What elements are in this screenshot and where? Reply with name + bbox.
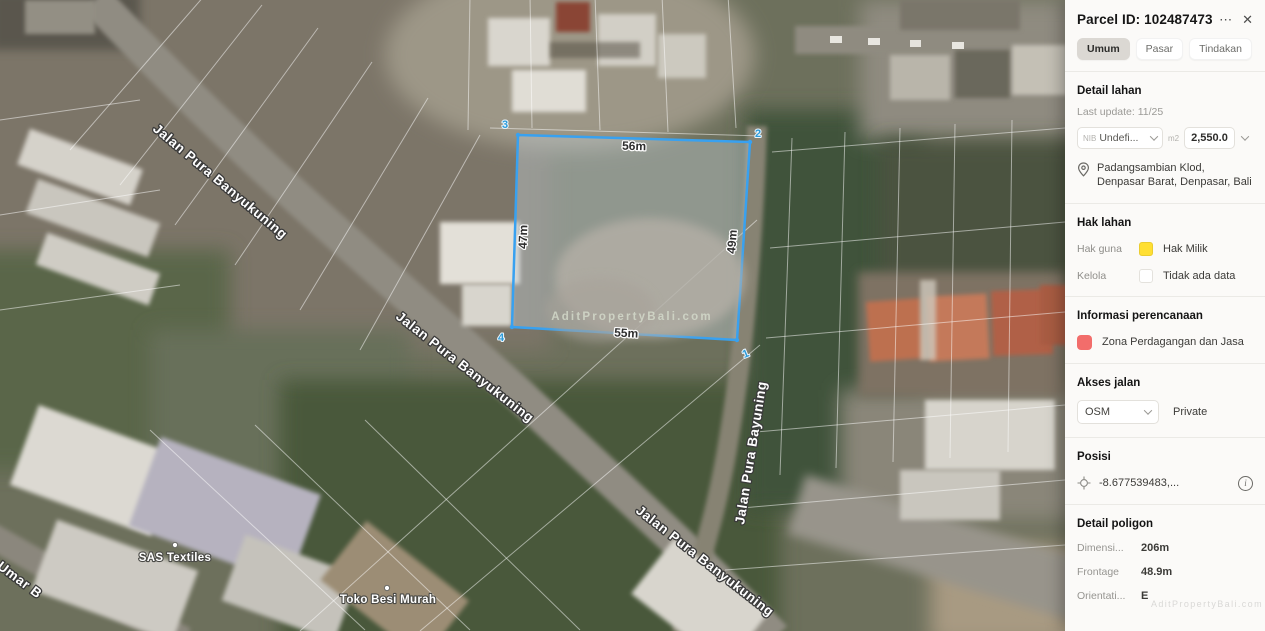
section-detail-lahan: Detail lahan Last update: 11/25 NIB Unde… — [1065, 72, 1265, 204]
detail-poligon-heading: Detail poligon — [1077, 518, 1253, 530]
section-informasi-perencanaan: Informasi perencanaan Zona Perdagangan d… — [1065, 297, 1265, 364]
edge-label-left: 47m — [516, 225, 531, 250]
road-source-select[interactable]: OSM — [1077, 400, 1159, 424]
satellite-canvas: 56m 47m 49m 55m 3 2 1 4 AditPropertyBali… — [0, 0, 1065, 631]
detail-lahan-heading: Detail lahan — [1077, 85, 1253, 97]
page-title: Parcel ID: 102487473 — [1077, 12, 1213, 27]
panel-header: Parcel ID: 102487473 ⋯ ✕ — [1065, 0, 1265, 34]
section-akses-jalan: Akses jalan OSM Private — [1065, 364, 1265, 438]
nib-label: NIB — [1083, 134, 1096, 143]
close-icon[interactable]: ✕ — [1240, 11, 1255, 28]
akses-jalan-heading: Akses jalan — [1077, 377, 1253, 389]
hak-guna-swatch — [1139, 242, 1153, 256]
edge-label-bottom: 55m — [614, 325, 639, 340]
nib-select[interactable]: NIB Undefi... — [1077, 127, 1163, 149]
map-watermark: AditPropertyBali.com — [551, 311, 713, 323]
road-type-value: Private — [1173, 406, 1207, 418]
frontage-row: Frontage 48.9m — [1077, 566, 1253, 578]
section-posisi: Posisi -8.677539483,... i — [1065, 438, 1265, 505]
kelola-value: Tidak ada data — [1163, 270, 1235, 282]
road-source-value: OSM — [1085, 406, 1110, 418]
poi-label-sas-textiles: SAS Textiles — [139, 552, 211, 564]
chevron-down-icon — [1150, 132, 1158, 140]
edge-label-top: 56m — [622, 139, 646, 154]
informasi-perencanaan-heading: Informasi perencanaan — [1077, 310, 1253, 322]
zone-label: Zona Perdagangan dan Jasa — [1102, 336, 1244, 348]
orientasi-row: Orientati... E — [1077, 590, 1253, 602]
posisi-heading: Posisi — [1077, 451, 1253, 463]
dimensi-value: 206m — [1141, 542, 1169, 554]
kelola-row: Kelola Tidak ada data — [1077, 269, 1253, 283]
poi-label-toko-besi-murah: Toko Besi Murah — [340, 594, 436, 606]
tab-umum[interactable]: Umum — [1077, 38, 1130, 60]
vertex-label-4: 4 — [498, 332, 505, 344]
zone-row: Zona Perdagangan dan Jasa — [1077, 335, 1253, 350]
nib-value: Undefi... — [1099, 132, 1138, 144]
area-value: 2,550.0 — [1191, 132, 1228, 144]
vertex-label-3: 3 — [502, 119, 508, 131]
frontage-value: 48.9m — [1141, 566, 1172, 578]
tab-bar: Umum Pasar Tindakan — [1065, 34, 1265, 72]
dimensi-label: Dimensi... — [1077, 542, 1141, 554]
last-update-text: Last update: 11/25 — [1077, 106, 1253, 118]
area-unit-label: m2 — [1168, 134, 1179, 143]
coordinates-value: -8.677539483,... — [1099, 477, 1230, 489]
orientasi-label: Orientati... — [1077, 590, 1141, 602]
info-icon[interactable]: i — [1238, 476, 1253, 491]
section-hak-lahan: Hak lahan Hak guna Hak Milik Kelola Tida… — [1065, 204, 1265, 297]
frontage-label: Frontage — [1077, 566, 1141, 578]
zone-swatch — [1077, 335, 1092, 350]
hak-guna-value: Hak Milik — [1163, 243, 1208, 255]
area-input[interactable]: 2,550.0 — [1184, 127, 1235, 149]
chevron-down-icon — [1144, 406, 1152, 414]
kelola-swatch — [1139, 269, 1153, 283]
satellite-map[interactable]: 56m 47m 49m 55m 3 2 1 4 AditPropertyBali… — [0, 0, 1065, 631]
dimensi-row: Dimensi... 206m — [1077, 542, 1253, 554]
tab-pasar[interactable]: Pasar — [1136, 38, 1183, 60]
orientasi-value: E — [1141, 590, 1148, 602]
hak-lahan-heading: Hak lahan — [1077, 217, 1253, 229]
parcel-address: Padangsambian Klod, Denpasar Barat, Denp… — [1097, 161, 1253, 190]
edge-label-right: 49m — [724, 229, 740, 254]
vertex-label-2: 2 — [755, 128, 761, 140]
crosshair-icon — [1077, 476, 1091, 490]
more-options-button[interactable]: ⋯ — [1217, 11, 1234, 28]
chevron-down-icon[interactable] — [1241, 132, 1249, 140]
location-pin-icon — [1077, 162, 1090, 177]
tab-tindakan[interactable]: Tindakan — [1189, 38, 1252, 60]
section-detail-poligon: Detail poligon Dimensi... 206m Frontage … — [1065, 505, 1265, 615]
hak-guna-label: Hak guna — [1077, 243, 1139, 255]
hak-guna-row: Hak guna Hak Milik — [1077, 242, 1253, 256]
kelola-label: Kelola — [1077, 270, 1139, 282]
parcel-detail-panel: Parcel ID: 102487473 ⋯ ✕ Umum Pasar Tind… — [1065, 0, 1265, 631]
